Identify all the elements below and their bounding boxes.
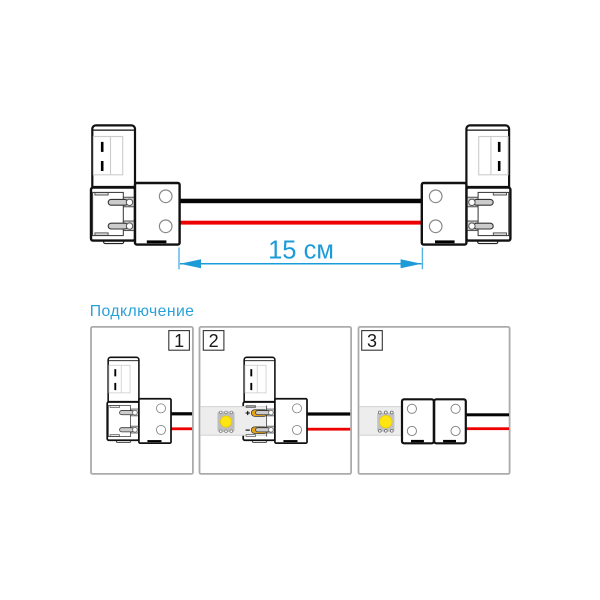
svg-text:Подключение: Подключение [90, 303, 195, 320]
svg-text:2: 2 [209, 331, 219, 351]
svg-text:3: 3 [367, 331, 377, 351]
svg-text:1: 1 [174, 331, 184, 351]
svg-text:15 см: 15 см [268, 237, 334, 265]
